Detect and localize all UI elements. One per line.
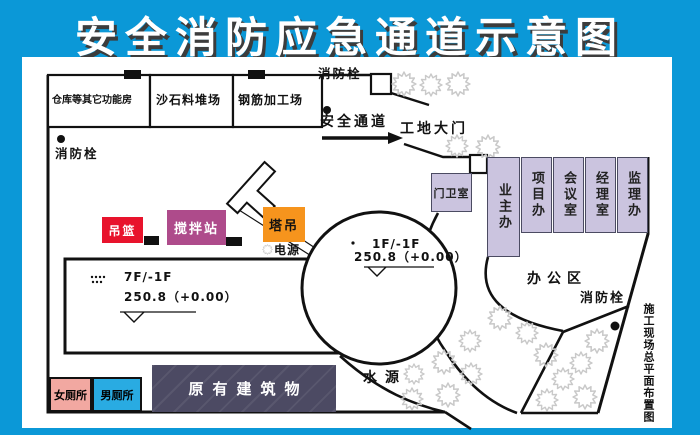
- womens-toilet-block: 女厕所: [49, 377, 92, 412]
- warehouse-label: 仓库等其它功能房: [52, 96, 132, 106]
- side-caption: 施工现场总平面布置图: [643, 303, 654, 423]
- safety-passage-label: 安全通道: [320, 115, 388, 129]
- room-meeting-room: 会议室: [553, 157, 584, 233]
- water-source-label: 水源: [363, 371, 407, 385]
- safety-fire-passage-poster: 安全消防应急通道示意图: [0, 0, 700, 435]
- room-manager-office: 经理室: [585, 157, 616, 233]
- meeting-room-label: 会议室: [559, 171, 578, 219]
- rebar-workshop-label: 钢筋加工场: [238, 94, 303, 106]
- owner-office-label: 业主办: [494, 183, 513, 231]
- guard-room-label: 门卫室: [434, 185, 470, 201]
- site-gate-label: 工地大门: [400, 122, 468, 136]
- hanging-basket-label: 吊篮: [108, 222, 136, 239]
- mens-toilet-block: 男厕所: [92, 377, 142, 412]
- existing-building-block: 原有建筑物: [152, 365, 336, 412]
- power-label: 电源: [274, 244, 300, 256]
- manager-office-label: 经理室: [591, 171, 610, 219]
- poster-title: 安全消防应急通道示意图: [0, 4, 700, 65]
- mixing-station-label: 搅拌站: [174, 218, 219, 237]
- sand-gravel-yard-label: 沙石料堆场: [156, 94, 221, 106]
- hanging-basket-block: 吊篮: [102, 217, 143, 243]
- existing-building-label: 原有建筑物: [188, 378, 308, 399]
- mens-toilet-label: 男厕所: [101, 387, 134, 403]
- tower-crane-block: 塔吊: [263, 207, 305, 242]
- guard-room: 门卫室: [431, 173, 472, 212]
- round-building-floors: 1F/-1F: [372, 238, 420, 250]
- hydrant-top-label: 消防栓: [318, 68, 362, 81]
- room-project-office: 项目办: [521, 157, 552, 233]
- mixing-station-block: 搅拌站: [167, 210, 226, 245]
- womens-toilet-label: 女厕所: [54, 387, 87, 403]
- main-building-elevation: 250.8（+0.00）: [124, 291, 238, 303]
- tower-crane-label: 塔吊: [269, 215, 299, 234]
- room-owner-office: 业主办: [487, 157, 520, 257]
- office-area-label: 办公区: [527, 272, 587, 286]
- hydrant-right-label: 消防栓: [580, 292, 625, 305]
- main-building-floors: 7F/-1F: [124, 271, 172, 283]
- round-building-elevation: 250.8（+0.00）: [354, 251, 468, 263]
- project-office-label: 项目办: [527, 171, 546, 219]
- room-supervision-office: 监理办: [617, 157, 648, 233]
- supervision-office-label: 监理办: [623, 171, 642, 219]
- hydrant-left-label: 消防栓: [55, 148, 99, 161]
